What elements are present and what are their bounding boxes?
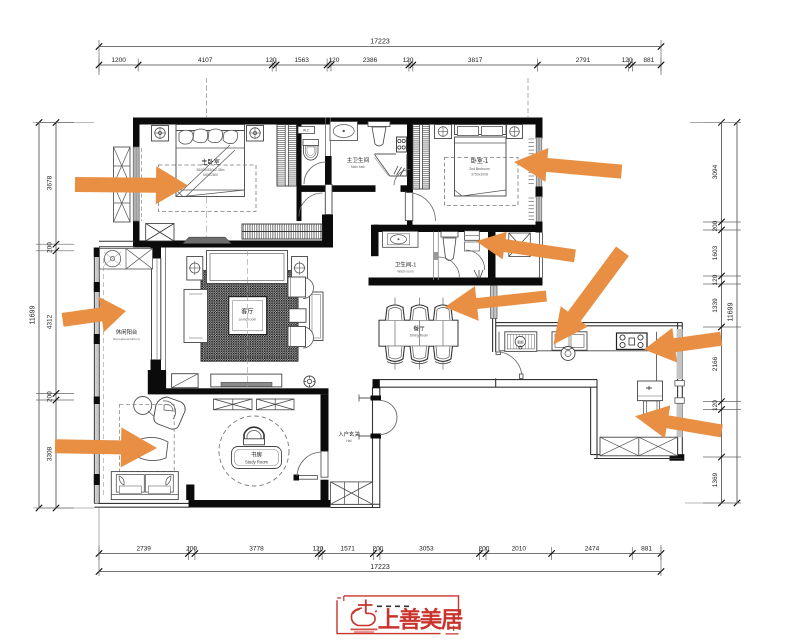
svg-text:120: 120 <box>622 57 633 64</box>
svg-text:2010: 2010 <box>512 546 527 553</box>
svg-text:入户玄关: 入户玄关 <box>338 430 360 438</box>
svg-text:2739: 2739 <box>136 546 151 553</box>
svg-text:1369: 1369 <box>712 472 719 487</box>
svg-text:4312: 4312 <box>47 314 54 329</box>
svg-text:3053: 3053 <box>419 546 434 553</box>
svg-text:橱柜: 橱柜 <box>517 340 524 345</box>
svg-text:2386: 2386 <box>363 57 378 64</box>
svg-text:5400/2800: 5400/2800 <box>203 173 218 177</box>
svg-text:120: 120 <box>403 57 414 64</box>
svg-text:2nd Bedroom: 2nd Bedroom <box>469 167 490 171</box>
svg-text:4107: 4107 <box>198 57 213 64</box>
svg-text:1603: 1603 <box>712 245 719 260</box>
svg-text:上善美居: 上善美居 <box>378 607 463 633</box>
svg-text:120: 120 <box>712 274 719 285</box>
svg-text:17223: 17223 <box>370 564 390 571</box>
svg-text:Study Room: Study Room <box>245 460 269 465</box>
svg-text:200: 200 <box>479 546 490 553</box>
svg-text:1563: 1563 <box>294 57 309 64</box>
svg-text:3750x3008: 3750x3008 <box>471 173 488 177</box>
svg-text:11699: 11699 <box>728 302 735 321</box>
svg-text:W.C: W.C <box>303 129 310 133</box>
svg-text:2166: 2166 <box>712 356 719 371</box>
svg-text:Wash room: Wash room <box>397 270 414 274</box>
svg-text:Main bath: Main bath <box>351 165 365 169</box>
svg-text:Hall: Hall <box>346 439 352 443</box>
svg-text:11699: 11699 <box>30 305 37 324</box>
svg-text:卫生间-1: 卫生间-1 <box>395 261 417 269</box>
svg-text:3778: 3778 <box>249 546 264 553</box>
svg-text:1200: 1200 <box>111 57 126 64</box>
svg-text:Recreational balcony: Recreational balcony <box>113 337 141 341</box>
svg-text:200: 200 <box>47 391 54 402</box>
svg-text:200: 200 <box>712 220 719 231</box>
svg-text:881: 881 <box>643 57 654 64</box>
svg-text:17223: 17223 <box>370 39 390 46</box>
svg-text:卧室-1: 卧室-1 <box>471 157 489 165</box>
svg-text:3308: 3308 <box>47 446 54 461</box>
svg-text:120: 120 <box>266 57 277 64</box>
svg-text:2791: 2791 <box>576 57 591 64</box>
svg-text:主卫生间: 主卫生间 <box>347 156 370 164</box>
svg-text:3094: 3094 <box>712 164 719 179</box>
svg-text:书房: 书房 <box>251 451 263 459</box>
svg-text:200: 200 <box>373 546 384 553</box>
svg-text:200: 200 <box>47 242 54 253</box>
svg-text:3600x4150x2.35m: 3600x4150x2.35m <box>197 168 225 172</box>
svg-text:200: 200 <box>186 546 197 553</box>
svg-text:120: 120 <box>313 546 324 553</box>
svg-text:2474: 2474 <box>585 546 600 553</box>
svg-text:120: 120 <box>712 400 719 411</box>
svg-text:1339: 1339 <box>712 298 719 313</box>
svg-text:881: 881 <box>641 546 652 553</box>
svg-text:休闲阳台: 休闲阳台 <box>116 328 138 336</box>
svg-text:3817: 3817 <box>468 57 483 64</box>
svg-text:1571: 1571 <box>340 546 355 553</box>
svg-text:120: 120 <box>329 57 340 64</box>
svg-text:3678: 3678 <box>47 175 54 190</box>
svg-text:主卧室: 主卧室 <box>201 158 220 166</box>
